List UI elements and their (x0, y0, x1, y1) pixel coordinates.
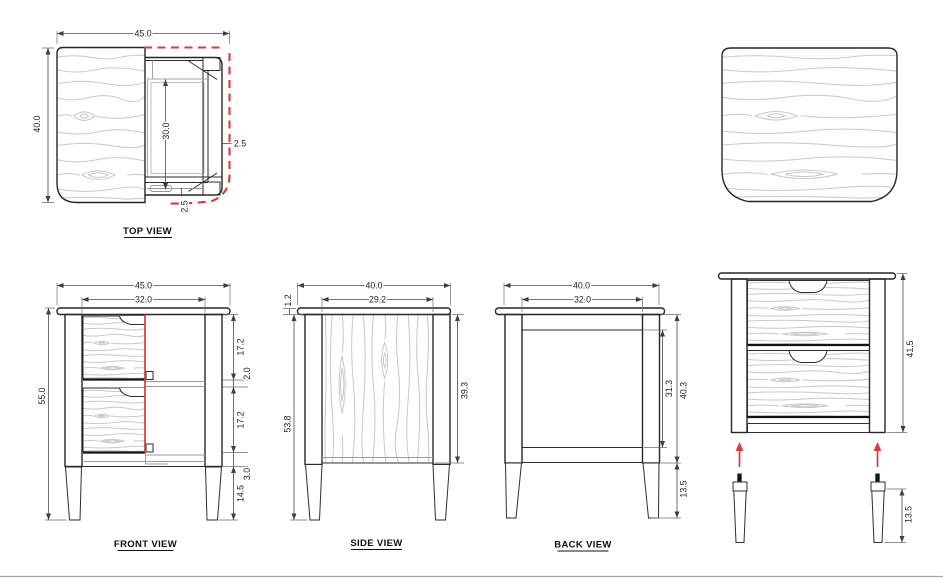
back-view-label: BACK VIEW (554, 540, 612, 551)
dim-back-leg-height: 13.5 (678, 480, 688, 497)
dim-front-overall-width: 45.0 (135, 280, 152, 290)
front-right-post (205, 315, 222, 467)
exploded-top-drawer-handle-notch (789, 281, 827, 293)
dim-front-divider: 2.0 (242, 367, 252, 379)
corner-block-bottom (203, 182, 220, 195)
back-right-post (643, 315, 660, 464)
top-view-label: TOP VIEW (123, 226, 172, 237)
dim-side-panel-height: 39.3 (459, 382, 469, 399)
back-left-leg (506, 463, 522, 518)
front-view: 45.0 32.0 55.0 17.2 2.0 17.2 3.0 14.5 FR… (37, 280, 252, 550)
front-left-leg (66, 467, 82, 520)
dim-top-overall-depth: 40.0 (32, 115, 42, 132)
exploded-tabletop (719, 273, 896, 279)
detached-leg-left (733, 474, 747, 543)
front-right-leg (206, 467, 222, 520)
front-bottom-drawer-grain (82, 390, 146, 451)
dim-front-base-rail: 3.0 (242, 468, 252, 480)
dim-side-top-thickness: 1.2 (283, 294, 293, 306)
corner-block-top (203, 58, 220, 71)
exploded-bottom-drawer-handle-notch (789, 351, 827, 363)
dim-front-top-drawer-height: 17.2 (235, 338, 245, 355)
dim-top-drawer-opening: 30.0 (161, 122, 171, 139)
drawer-runner-clip-top (146, 372, 153, 380)
technical-drawing-canvas: 45.0 40.0 30.0 2.5 2.5 TOP VIEW (0, 0, 943, 581)
leg-assembly-arrow-right-icon (874, 442, 882, 467)
side-panel-wood-grain (325, 314, 429, 464)
top-render-wood-grain (722, 55, 897, 198)
exploded-left-post (732, 279, 748, 433)
dim-front-leg-height: 14.5 (235, 485, 245, 502)
side-back-leg (433, 465, 450, 521)
drawer-box-hidden-line (148, 79, 208, 177)
dim-exploded-leg-height: 13.5 (903, 506, 913, 523)
carcass-section-outline (145, 58, 222, 196)
drawing-sheet: 45.0 40.0 30.0 2.5 2.5 TOP VIEW (0, 0, 943, 581)
leg-assembly-arrow-left-icon (736, 442, 744, 467)
dim-front-overall-height: 55.0 (37, 387, 47, 404)
dim-front-bottom-drawer-height: 17.2 (235, 411, 245, 428)
front-tabletop (57, 308, 230, 315)
front-top-drawer-handle-notch (120, 316, 146, 325)
side-view: 40.0 29.2 1.2 53.8 39.3 SIDE VIEW (282, 280, 469, 549)
top-render-view (722, 48, 897, 202)
front-view-label: FRONT VIEW (114, 539, 177, 550)
dim-top-front-rail: 2.5 (179, 200, 189, 212)
side-tabletop (298, 308, 451, 315)
drawer-runner-clip-bottom (146, 444, 153, 452)
dim-side-panel-width: 29.2 (369, 294, 386, 304)
dim-back-panel-height: 31.3 (664, 380, 674, 397)
top-view: 45.0 40.0 30.0 2.5 2.5 TOP VIEW (32, 28, 246, 237)
dim-side-overall-depth: 40.0 (365, 280, 382, 290)
dim-back-frame-width: 40.0 (573, 280, 590, 290)
dim-side-body-height: 53.8 (282, 415, 292, 432)
dim-back-frame-height: 40.3 (678, 382, 688, 399)
back-view: 40.0 32.0 31.3 40.3 13.5 BACK VIEW (496, 280, 689, 551)
top-surface-wood-grain (57, 55, 145, 199)
side-view-label: SIDE VIEW (350, 538, 402, 549)
exploded-view: 41.5 13.5 (719, 273, 915, 543)
front-left-post (65, 315, 82, 467)
back-tabletop (496, 308, 665, 315)
dim-top-overall-width: 45.0 (134, 28, 151, 38)
back-right-leg (643, 463, 659, 518)
exploded-right-post (870, 279, 886, 433)
side-front-post (305, 315, 322, 465)
front-top-drawer-grain (82, 317, 146, 378)
side-front-leg (306, 465, 323, 521)
side-back-post (433, 315, 450, 465)
dim-front-drawer-width: 32.0 (135, 294, 152, 304)
detached-leg-right (871, 474, 885, 543)
dim-back-inner-width: 32.0 (574, 294, 591, 304)
exploded-bottom-rail (748, 424, 870, 433)
dim-top-side-clearance: 2.5 (234, 138, 246, 148)
back-left-post (505, 315, 522, 464)
dim-exploded-carcass-height: 41.5 (905, 340, 915, 357)
